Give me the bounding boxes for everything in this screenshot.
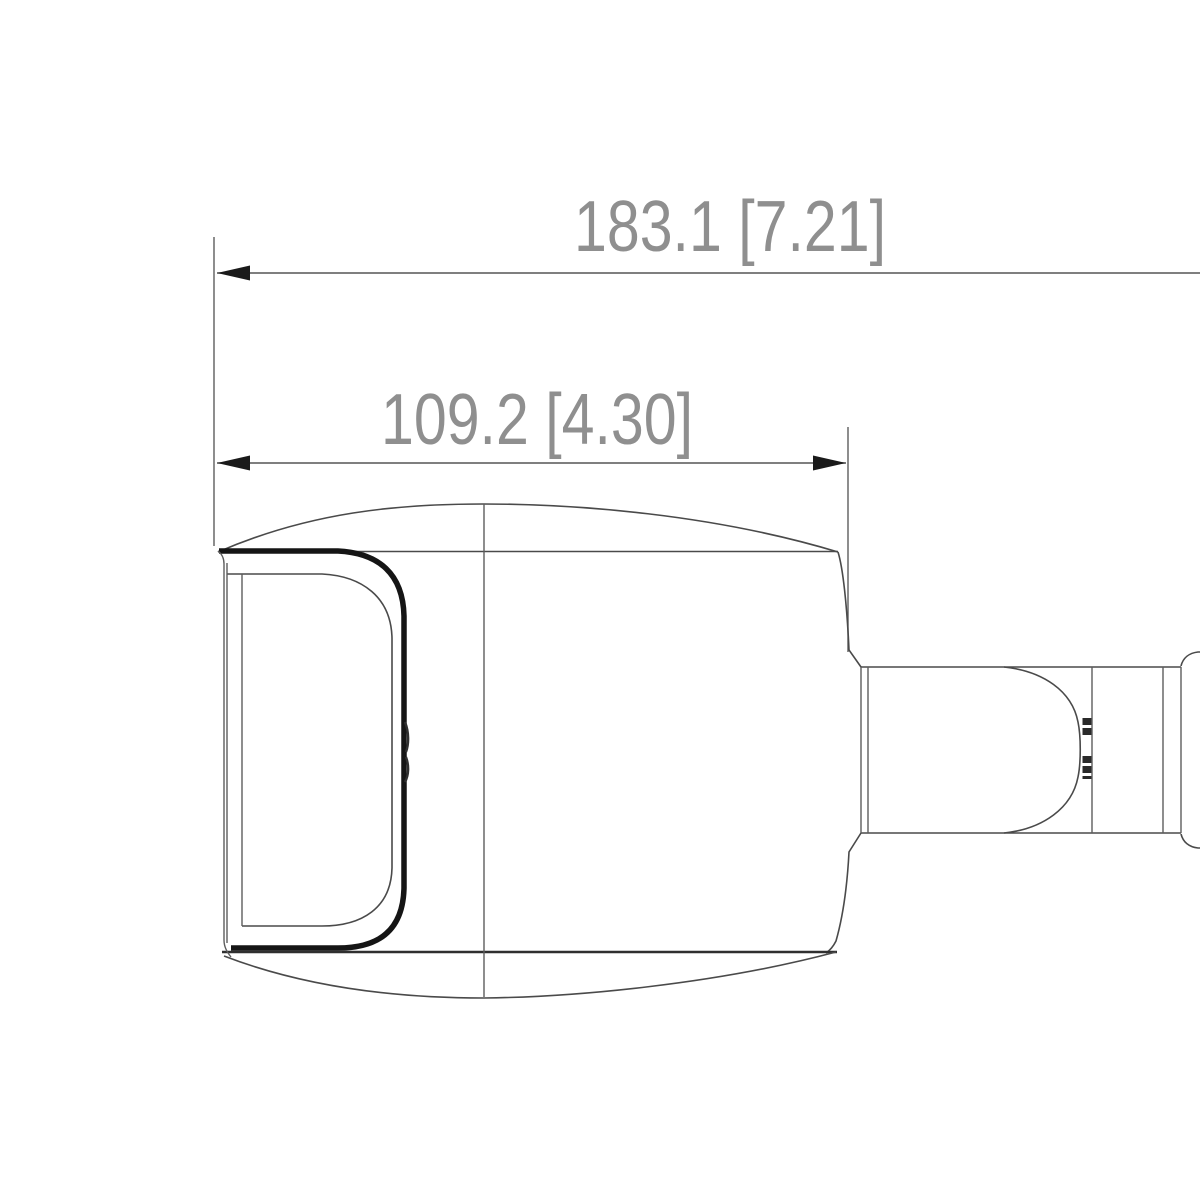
arrowhead-right-icon [813,456,846,471]
junction-end-top-corner [1181,652,1200,666]
camera-body-outline [218,504,861,998]
mount-bracket [861,652,1200,848]
body-rear-edge-top [838,552,861,667]
body-bottom-cap [224,952,836,998]
body-rear-edge-bottom [826,833,861,953]
dimension-drawing: 183.1 [7.21] 109.2 [4.30] [0,0,1200,1200]
dimension-overall-length: 183.1 [7.21] [214,187,1200,546]
arrowhead-left-icon [217,456,250,471]
lens-hood-outer-rim [219,551,404,948]
lens-hood-inner-rim [227,574,392,926]
bracket-hinge-arc [1004,667,1080,833]
drawing-canvas: 183.1 [7.21] 109.2 [4.30] [0,0,1200,1200]
dimension-label-body: 109.2 [4.30] [381,380,693,460]
lens-hood [218,551,408,957]
dimension-body-length: 109.2 [4.30] [217,380,848,652]
junction-end-bottom-corner [1181,834,1200,848]
front-face-outer-edge [218,551,231,957]
arrowhead-left-icon [217,266,250,281]
body-top-dome [218,504,838,552]
dimension-label-overall: 183.1 [7.21] [574,187,886,267]
